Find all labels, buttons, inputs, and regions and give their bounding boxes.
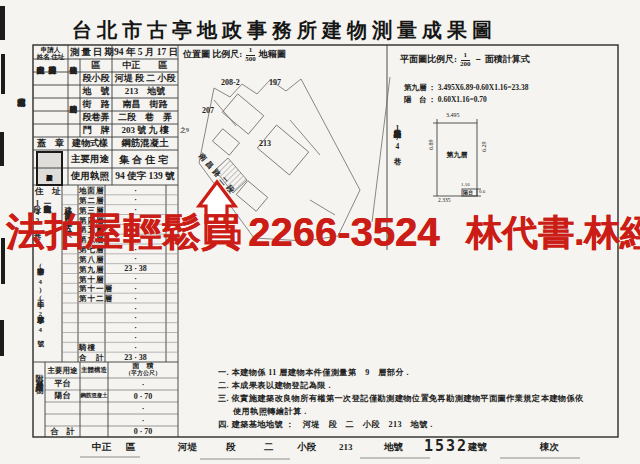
- annex-row-use: 平台: [45, 380, 80, 388]
- note-4: 四. 建築基地地號 ： 河堤 段 二 小段 213 地號 .: [218, 419, 433, 430]
- building-location-span: 建物坐落: [69, 60, 77, 97]
- plan-room-label: 第九層: [439, 152, 475, 159]
- license-value: 94 使字 139 號: [112, 172, 178, 182]
- parcel-label-207: 207: [202, 107, 214, 115]
- license-label: 使用執照: [68, 172, 112, 182]
- survey-date-value: 94 年 5 月 17 日: [114, 48, 178, 58]
- footer-unit-suffix: 棟次: [540, 443, 559, 453]
- page-title: 台北市古亭地政事務所建物測量成果圖: [72, 20, 497, 41]
- applicant-header: 申請人姓名 住址: [34, 46, 67, 60]
- plan-dim-balcony-width: 1.16: [461, 182, 470, 187]
- note-2: 二. 本成果表以建物登記為限 .: [218, 380, 331, 391]
- floor-row: 第八層·: [62, 254, 178, 264]
- plan-dim-right: 6.29: [481, 142, 487, 153]
- row-label-lane: 段巷弄: [80, 113, 112, 122]
- annex-total-value: 0 · 70: [108, 428, 178, 436]
- floor-row: 第十一層·: [62, 283, 178, 293]
- annex-section-label: 附屬建物: [34, 368, 42, 430]
- row-value-lane: 二段 巷 弄: [112, 113, 178, 122]
- seal-label: 蓋 章: [34, 139, 67, 148]
- footer-subsection: 二: [264, 443, 274, 453]
- use-label: 主要用途: [68, 155, 112, 165]
- annex-row-area: ·: [108, 381, 178, 389]
- street-label-roosevelt: 羅斯福路二段174巷: [393, 124, 401, 210]
- floor-row: 第九層23 · 38: [62, 264, 178, 274]
- survey-document-sheet: 台北市古亭地政事務所建物測量成果圖 申請人姓名 住址 測量日期 94 年 5 月…: [0, 0, 640, 464]
- row-value-parcel: 213 地號: [112, 87, 178, 96]
- row-label-door: 門 牌: [80, 126, 112, 135]
- annex-row-area: 0 · 70: [108, 393, 178, 401]
- row-value-district: 中正 區: [112, 61, 178, 70]
- plan-dim-left: 6.89: [428, 140, 434, 151]
- company-seal: 葚昇建設印: [36, 151, 63, 186]
- row-label-district: 區: [80, 61, 112, 70]
- annex-structure-header: 主體構造: [80, 367, 108, 374]
- footer-section-suffix: 段: [226, 443, 236, 453]
- area-formula-floor: 第九層 ： 3.495X6.89-0.60X1.16=23.38: [404, 84, 528, 92]
- area-formula-balcony: 陽 台 ： 0.60X1.16=0.70: [404, 96, 487, 104]
- floor-row: ·: [62, 333, 178, 343]
- floor-row: 合 計23 · 38: [62, 352, 178, 362]
- floor-row: 第十二層·: [62, 293, 178, 303]
- footer-section: 河堤: [178, 443, 197, 453]
- style-value: 鋼筋混凝土: [112, 139, 178, 149]
- footer-building-number: 1532: [424, 439, 468, 455]
- plan-scale-header: 平面圖比例尺:1200－ 面積計算式: [400, 52, 530, 68]
- footer-parcel: 213: [339, 443, 353, 452]
- annex-total-label: 合 計: [45, 428, 80, 436]
- footer-district: 中正: [92, 443, 111, 453]
- floor-row: ·: [62, 313, 178, 323]
- note-3: 三. 依實施建築改良物所有權第一次登記僅勘測建物位置免再勘測建物平面圖作業規定本…: [218, 393, 584, 404]
- plan-dim-top: 3.495: [446, 112, 460, 118]
- annex-row-use: 陽台: [45, 392, 80, 400]
- floor-row: 騎樓·: [62, 342, 178, 352]
- annex-row-area: ·: [108, 417, 178, 425]
- annex-row-structure: 鋼筋混凝土: [80, 393, 108, 399]
- row-value-street: 南昌 街路: [112, 100, 178, 109]
- footer-subsection-suffix: 小段: [297, 443, 316, 453]
- annex-area-header: 面 積（平方公尺）: [108, 363, 178, 378]
- applicant-company: 葚昇建設股份有限公司: [48, 60, 56, 136]
- note-3-cont: 使用執照轉繪計算 .: [233, 406, 307, 417]
- watermark-text-left: 法拍屋輕鬆買: [6, 212, 240, 251]
- watermark-text-right: 林代書.林經理: [466, 215, 640, 251]
- row-label-street: 街 路: [80, 100, 112, 109]
- row-label-section: 段小段: [80, 74, 112, 83]
- outside-agent: 右代理人蔡瑞炯: [16, 92, 24, 192]
- survey-date-label: 測量日期: [70, 48, 116, 58]
- watermark-phone: 2266-3524: [248, 212, 439, 252]
- floor-row: 地面層·: [62, 185, 178, 195]
- parcel-label-197: 197: [269, 79, 281, 87]
- row-value-section: 河堤 段 二 小段: [112, 74, 178, 83]
- footer-building-number-suffix: 建號: [468, 443, 487, 453]
- style-label: 建物式樣: [68, 139, 112, 148]
- floor-row: 第十層·: [62, 274, 178, 284]
- door-extra-note: 之9: [180, 127, 189, 133]
- annex-use-header: 主要用途: [45, 367, 80, 375]
- floor-row: ·: [62, 303, 178, 313]
- plan-dim-balcony-height: 0.6: [479, 189, 485, 194]
- plan-dim-bottom: 2.335: [438, 198, 450, 204]
- note-1: 一. 本建物係 11 層建物本件僅測量第 9 層部分 .: [218, 367, 409, 378]
- annex-row-area: ·: [108, 405, 178, 413]
- use-value: 集合住宅: [112, 155, 178, 166]
- footer-district-suffix: 區: [126, 443, 136, 453]
- row-value-door: 203 號 九 樓: [112, 126, 178, 135]
- application-number: 申請書(94)中正(一)建字第234號: [36, 262, 43, 362]
- floor-row: ·: [62, 323, 178, 333]
- parcel-label-213: 213: [259, 140, 271, 148]
- plan-balcony-label: 陽台: [463, 190, 473, 195]
- footer-parcel-suffix: 地號: [384, 443, 403, 453]
- row-label-parcel: 地 號: [80, 87, 112, 96]
- floor-row: 第二層·: [62, 195, 178, 205]
- parcel-label-208-2: 208-2: [221, 79, 240, 87]
- location-map-scale: 位置圖 比例尺:1500地籍圖: [183, 47, 286, 63]
- building-door-span: 建物門牌: [69, 99, 77, 136]
- applicant-legal-rep: 法定代理人袁敏孝: [36, 60, 44, 136]
- address-label: 住 址: [35, 187, 61, 196]
